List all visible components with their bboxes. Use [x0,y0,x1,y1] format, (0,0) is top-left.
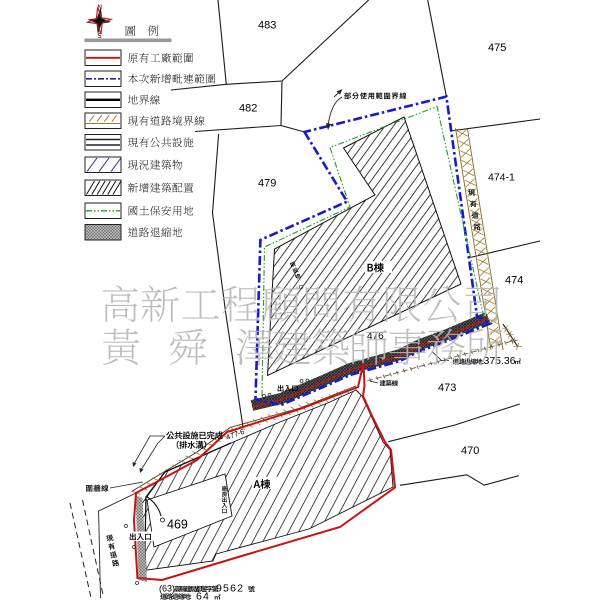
svg-text:9562: 9562 [216,583,244,595]
svg-text:474: 474 [505,275,523,287]
svg-text:64: 64 [196,591,210,600]
svg-text:474-1: 474-1 [488,172,515,184]
svg-text:375.36: 375.36 [484,355,516,367]
svg-text:479: 479 [258,178,276,190]
svg-text:475: 475 [488,42,506,54]
svg-text:483: 483 [258,20,276,32]
svg-text:482: 482 [239,103,257,115]
svg-text:(63): (63) [159,584,175,594]
svg-text:473: 473 [438,382,456,394]
svg-text:469: 469 [167,518,188,532]
svg-text:470: 470 [461,445,479,457]
